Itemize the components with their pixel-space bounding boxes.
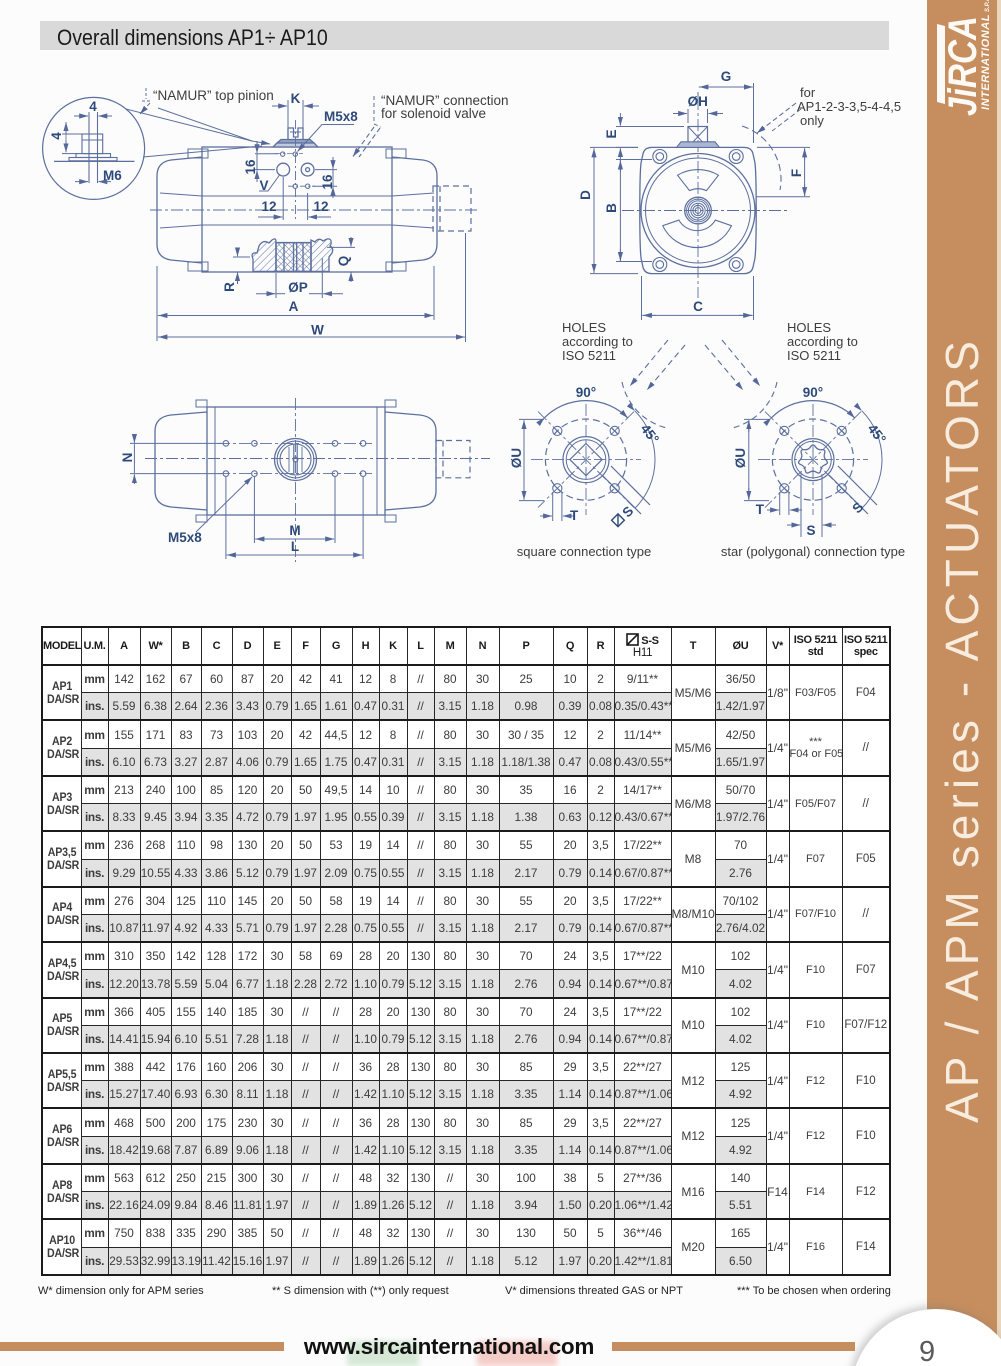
svg-text:HOLES: HOLES xyxy=(562,320,606,335)
svg-text:star (polygonal) connection ty: star (polygonal) connection type xyxy=(721,544,905,559)
svg-text:F: F xyxy=(789,169,804,177)
svg-text:AP1-2-3-3,5-4-4,5: AP1-2-3-3,5-4-4,5 xyxy=(797,99,901,114)
svg-text:T: T xyxy=(756,502,765,517)
svg-text:W: W xyxy=(311,323,324,338)
svg-text:S: S xyxy=(806,523,815,538)
svg-text:ØU: ØU xyxy=(733,448,748,468)
svg-text:M5x8: M5x8 xyxy=(324,109,358,124)
svg-text:N: N xyxy=(120,453,135,463)
svg-text:E: E xyxy=(604,129,619,138)
svg-text:L: L xyxy=(291,539,299,554)
svg-text:according to: according to xyxy=(562,334,633,349)
svg-text:only: only xyxy=(800,113,824,128)
svg-text:12: 12 xyxy=(313,199,328,214)
svg-text:12: 12 xyxy=(261,199,276,214)
svg-text:according to: according to xyxy=(787,334,858,349)
svg-text:D: D xyxy=(578,190,593,200)
svg-text:G: G xyxy=(721,69,732,84)
svg-text:A: A xyxy=(289,299,299,314)
svg-text:for solenoid valve: for solenoid valve xyxy=(381,106,486,121)
svg-text:JiRCA: JiRCA xyxy=(941,16,985,116)
svg-text:K: K xyxy=(291,91,301,106)
svg-text:ØP: ØP xyxy=(288,280,308,295)
svg-text:M5x8: M5x8 xyxy=(168,530,202,545)
svg-text:4: 4 xyxy=(49,132,64,140)
svg-text:S.P.A.: S.P.A. xyxy=(985,0,991,12)
svg-text:4: 4 xyxy=(89,99,97,114)
svg-text:ISO 5211: ISO 5211 xyxy=(787,348,841,363)
svg-text:R: R xyxy=(222,282,237,292)
svg-text:ØH: ØH xyxy=(688,94,708,109)
svg-text:16: 16 xyxy=(243,159,258,175)
svg-text:HOLES: HOLES xyxy=(787,320,831,335)
svg-text:16: 16 xyxy=(320,174,335,190)
svg-text:V: V xyxy=(259,178,268,193)
svg-text:45°: 45° xyxy=(638,421,662,446)
svg-text:90°: 90° xyxy=(576,385,596,400)
svg-text:square connection type: square connection type xyxy=(517,544,651,559)
svg-text:INTERNATIONAL: INTERNATIONAL xyxy=(980,14,992,110)
svg-text:90°: 90° xyxy=(803,385,823,400)
svg-text:ISO 5211: ISO 5211 xyxy=(562,348,616,363)
svg-text:M6: M6 xyxy=(103,168,122,183)
svg-text:T: T xyxy=(570,508,579,523)
svg-text:ØU: ØU xyxy=(509,448,524,468)
svg-text:C: C xyxy=(693,299,703,314)
svg-text:B: B xyxy=(604,203,619,213)
svg-text:“NAMUR” top pinion: “NAMUR” top pinion xyxy=(153,88,274,103)
svg-text:Q: Q xyxy=(336,256,351,267)
svg-text:S: S xyxy=(849,499,866,516)
svg-text:for: for xyxy=(800,85,816,100)
svg-text:45°: 45° xyxy=(865,421,889,446)
svg-text:M: M xyxy=(289,523,300,538)
